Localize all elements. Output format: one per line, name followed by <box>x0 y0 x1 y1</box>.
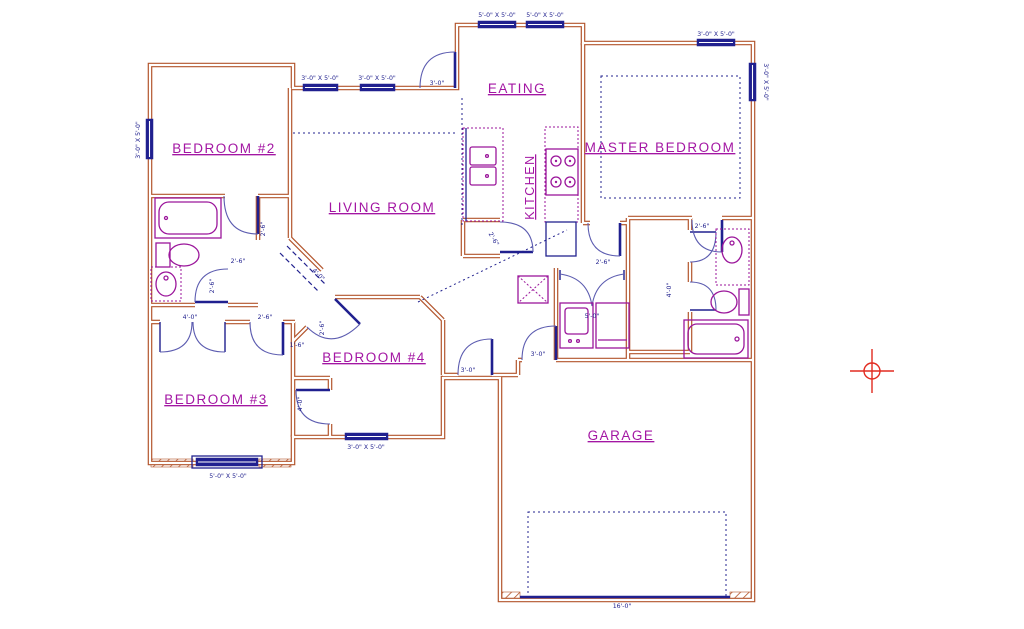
crosshair-target-icon <box>850 349 894 393</box>
window-living-2 <box>360 84 395 91</box>
vanity-sink-hall <box>151 267 181 301</box>
dimension-labels: 3'-0" X 5'-0" 3'-0" X 5'-0" 3'-0" 5'-0" … <box>135 12 769 610</box>
dim-bedroom3-closet: 4'-0" <box>183 314 198 321</box>
window-bedroom2-left <box>146 119 153 159</box>
kitchen-sink <box>470 147 496 185</box>
dim-front-entry-door: 3'-0" <box>461 367 476 374</box>
dim-master-closet-doors: 4'-0" <box>666 283 673 298</box>
toilet-hall <box>156 243 199 267</box>
dim-window-eating-1: 5'-0" X 5'-0" <box>478 12 516 19</box>
dim-bedroom4-closet: 4'-0" <box>297 397 304 412</box>
window-eating-2 <box>526 21 564 28</box>
master-tray-ceiling <box>601 76 740 198</box>
walls <box>150 25 753 600</box>
room-label-master: MASTER BEDROOM <box>585 140 736 155</box>
room-label-eating: EATING <box>488 81 546 96</box>
kitchen-fixtures <box>463 127 578 256</box>
bathtub-master <box>684 320 748 358</box>
room-label-kitchen: KITCHEN <box>523 154 537 219</box>
dim-window-master-right: 3'-0" X 5'-0" <box>762 63 769 101</box>
window-master-right <box>749 63 756 101</box>
window-bedroom4-bottom <box>345 433 388 440</box>
dryer <box>596 303 629 348</box>
laundry-closet-doors <box>560 270 624 306</box>
attic-access <box>518 276 548 303</box>
bedroom3-door <box>250 322 283 355</box>
dim-garage-entry-door: 3'-0" <box>531 351 546 358</box>
dim-window-bedroom2: 3'-0" X 5'-0" <box>135 121 142 159</box>
washer <box>560 303 593 348</box>
window-master-top <box>697 39 735 46</box>
stove <box>546 149 578 195</box>
master-bedroom-door <box>588 223 620 256</box>
room-label-living: LIVING ROOM <box>329 200 436 215</box>
window-living-1 <box>303 84 338 91</box>
kitchen-counter-right <box>545 127 578 222</box>
dim-window-living-1: 3'-0" X 5'-0" <box>301 75 339 82</box>
laundry-fixtures <box>518 276 629 348</box>
dim-bedroom3-door: 2'-6" <box>258 314 273 321</box>
dim-bedroom2-door-2: 2'-6" <box>260 222 267 237</box>
dim-hall-diagonal: 4'-0" <box>310 267 325 282</box>
garage-door-ceiling <box>528 512 726 597</box>
dim-hall-bath-door: 2'-6" <box>209 279 216 294</box>
refrigerator <box>546 222 576 256</box>
kitchen-counter-left <box>463 128 503 221</box>
dim-window-master-top: 3'-0" X 5'-0" <box>697 31 735 38</box>
window-eating-1 <box>478 21 516 28</box>
room-label-bedroom4: BEDROOM #4 <box>322 350 426 365</box>
dim-window-living-2: 3'-0" X 5'-0" <box>358 75 396 82</box>
bedroom2-door <box>224 196 258 234</box>
dim-bedroom4-door: 2'-6" <box>319 321 326 336</box>
room-label-garage: GARAGE <box>588 428 655 443</box>
toilet-master <box>711 289 749 315</box>
dim-master-bath-door: 2'-6" <box>695 223 710 230</box>
dim-laundry-doors: 5'-0" <box>585 313 600 320</box>
floor-plan-drawing: BEDROOM #2 LIVING ROOM EATING KITCHEN MA… <box>0 0 1024 629</box>
dim-window-bedroom4: 3'-0" X 5'-0" <box>347 444 385 451</box>
pantry-door <box>500 222 533 252</box>
master-bath-fixtures <box>684 229 749 358</box>
dim-front-top-door: 3'-0" <box>430 80 445 87</box>
room-label-bedroom3: BEDROOM #3 <box>164 392 268 407</box>
dim-window-eating-2: 5'-0" X 5'-0" <box>526 12 564 19</box>
dim-master-door: 2'-6" <box>596 259 611 266</box>
room-label-bedroom2: BEDROOM #2 <box>172 141 276 156</box>
floor-plan-page: BEDROOM #2 LIVING ROOM EATING KITCHEN MA… <box>0 0 1024 629</box>
dim-hall-opening: 1'-6" <box>290 342 305 349</box>
wall-hatching <box>151 459 751 599</box>
window-bedroom3-bottom <box>192 456 262 468</box>
room-labels: BEDROOM #2 LIVING ROOM EATING KITCHEN MA… <box>164 81 735 443</box>
bedroom3-closet-doors <box>160 322 225 352</box>
bedroom4-door <box>307 299 360 339</box>
dim-bedroom2-door: 2'-6" <box>231 258 246 265</box>
dim-window-bedroom3: 5'-0" X 5'-0" <box>209 473 247 480</box>
dim-garage-overhead-door: 16'-0" <box>613 603 632 610</box>
dim-pantry-door: 2'-6" <box>487 231 500 247</box>
bathtub-hall <box>155 198 221 238</box>
